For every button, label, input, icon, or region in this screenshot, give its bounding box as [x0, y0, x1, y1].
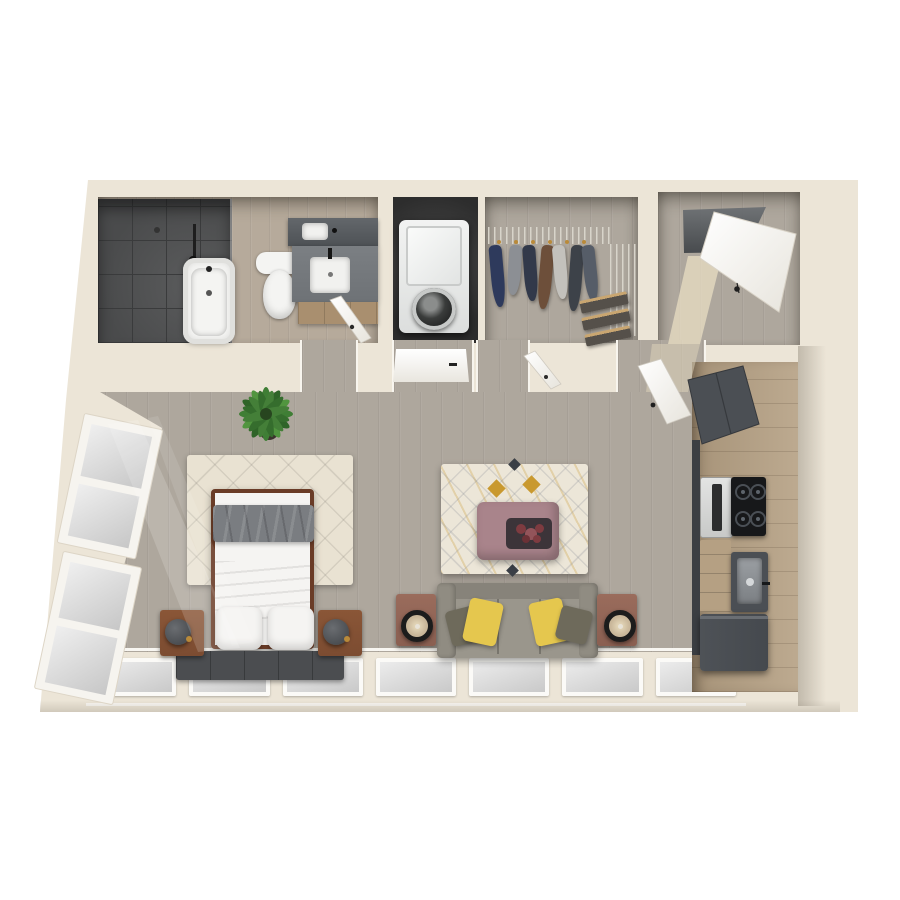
- faucet-base: [746, 578, 754, 586]
- door-handle: [449, 363, 457, 366]
- window-pane: [562, 658, 642, 696]
- microwave-window: [712, 484, 722, 531]
- faucet-reflection: [332, 228, 337, 233]
- hanger-hook: [565, 240, 569, 244]
- floor-plan: [0, 0, 900, 900]
- dryer-top-panel: [406, 226, 462, 286]
- flowers: [533, 535, 541, 543]
- closet-doorway: [476, 340, 530, 394]
- faucet-handle: [762, 582, 770, 585]
- shower-head: [154, 227, 160, 233]
- refrigerator: [700, 614, 768, 671]
- counter-edge: [692, 440, 700, 655]
- vanity-faucet: [328, 248, 332, 259]
- vanity-cabinet: [298, 302, 378, 324]
- tub-drain: [206, 290, 212, 296]
- bottom-wall-shadow: [40, 700, 840, 712]
- lamp-knob-right: [344, 636, 350, 642]
- washer-door: [412, 288, 456, 330]
- rug-gold-diamond: [522, 475, 540, 493]
- laundry-door-closed: [393, 349, 469, 382]
- window-pane: [469, 658, 549, 696]
- bed-pillow: [268, 607, 314, 650]
- bed-pillow: [216, 607, 262, 650]
- right-wall-shadow: [798, 346, 838, 706]
- bathtub-basin: [191, 268, 227, 336]
- bathroom-mirror: [288, 218, 378, 246]
- hanger-hook: [497, 240, 501, 244]
- ottoman: [477, 502, 559, 560]
- fridge-door-seam: [700, 616, 768, 619]
- rug-gold-diamond: [487, 479, 505, 497]
- burner: [750, 484, 766, 500]
- kitchen-drawers: [700, 540, 731, 612]
- sink-unit: [731, 552, 768, 612]
- throw-blanket: [213, 505, 314, 542]
- window-pane: [376, 658, 456, 696]
- hanger-hook: [548, 240, 552, 244]
- burner: [735, 484, 751, 500]
- hanger-hook: [531, 240, 535, 244]
- lamp-knob-left: [186, 636, 192, 642]
- fan-hub-right: [618, 624, 623, 629]
- hanger-hook: [582, 240, 586, 244]
- entry-floor: [658, 192, 800, 345]
- bathroom-doorway: [300, 340, 358, 394]
- fan-hub-left: [415, 624, 420, 629]
- hanger-hook: [514, 240, 518, 244]
- cooktop: [731, 477, 766, 536]
- flowers: [522, 535, 530, 543]
- sofa-back: [437, 583, 598, 599]
- burner: [750, 511, 766, 527]
- burner: [735, 511, 751, 527]
- washer-dryer-stack: [399, 220, 469, 333]
- flowers: [535, 524, 544, 533]
- mirror-sink-reflection: [302, 223, 328, 240]
- vanity-counter: [292, 246, 378, 302]
- window-pane: [96, 658, 176, 696]
- sink-drain: [328, 272, 333, 277]
- microwave: [700, 477, 733, 538]
- tub-faucet: [206, 266, 212, 272]
